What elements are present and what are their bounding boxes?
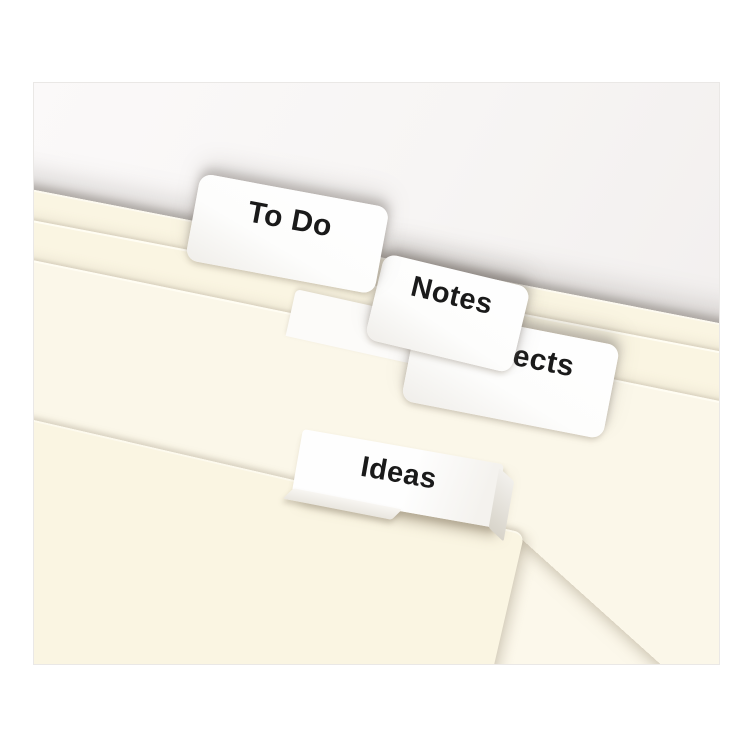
product-photo: Projects Notes To Do Ideas (33, 82, 720, 665)
